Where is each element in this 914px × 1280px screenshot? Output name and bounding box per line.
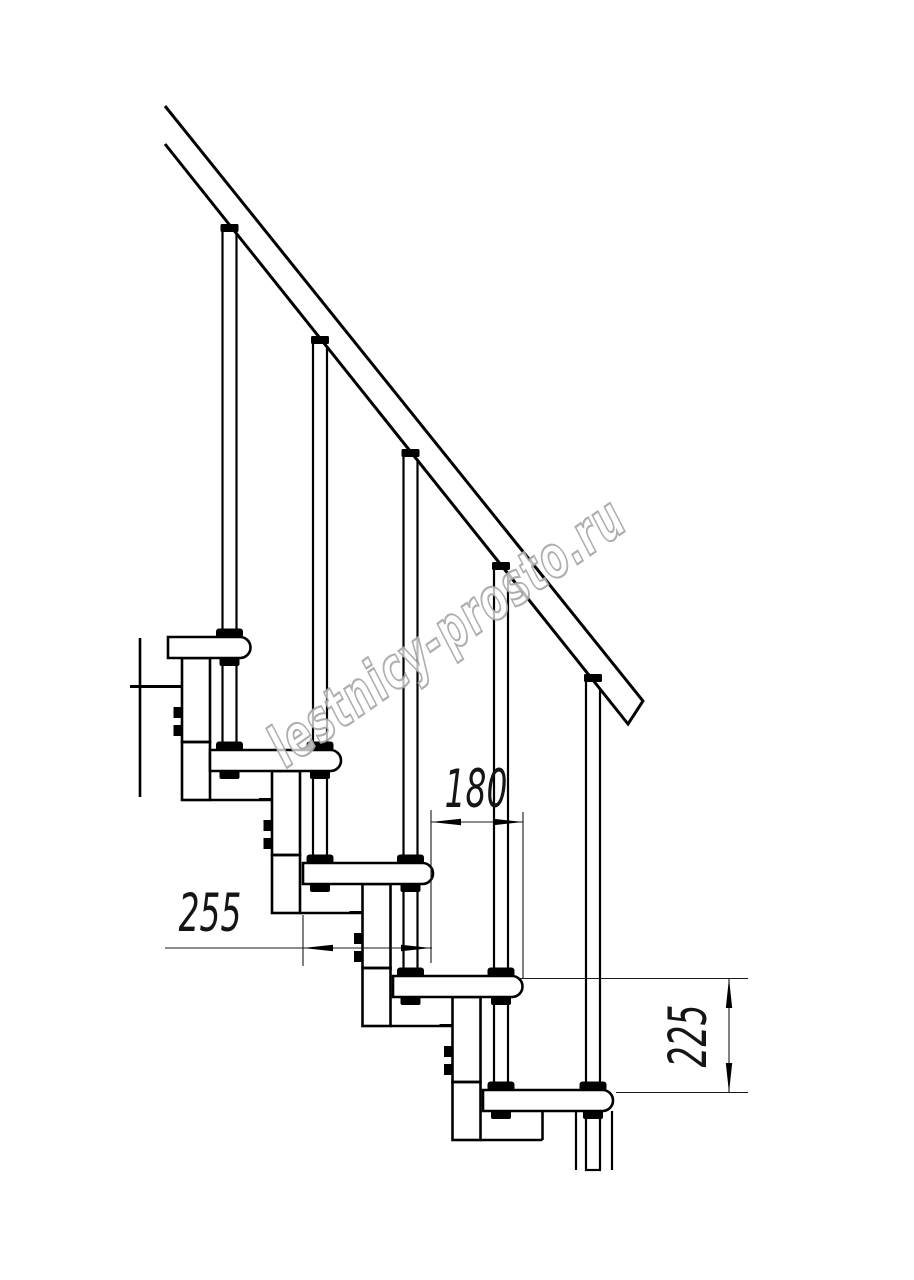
balusters bbox=[223, 230, 601, 1170]
collar-icon bbox=[397, 968, 424, 978]
tread bbox=[168, 637, 251, 658]
bolt-icon bbox=[264, 838, 273, 849]
dimension-label-255: 255 bbox=[179, 883, 242, 944]
bolt-icon bbox=[354, 951, 363, 962]
bolt-icon bbox=[444, 1046, 453, 1057]
dimension-label-180: 180 bbox=[445, 759, 508, 820]
arrow-up-icon bbox=[726, 979, 732, 1009]
nut-icon bbox=[310, 770, 330, 779]
nut-icon bbox=[491, 996, 511, 1005]
baluster bbox=[223, 230, 237, 750]
support-module bbox=[259, 771, 363, 913]
nut-icon bbox=[583, 1110, 603, 1119]
staircase-drawing-page: 180 255 225 lestnicy-prosto.ru bbox=[0, 0, 914, 1280]
collar-icon bbox=[488, 1082, 515, 1092]
baluster bbox=[404, 455, 418, 976]
collar-icon bbox=[397, 855, 424, 865]
collar-icon bbox=[307, 855, 334, 865]
dimension-label-225: 225 bbox=[658, 1005, 719, 1068]
bolt-icon bbox=[174, 725, 183, 736]
bolt-icon bbox=[444, 1064, 453, 1075]
support-module bbox=[350, 884, 453, 1026]
nut-icon bbox=[491, 1110, 511, 1119]
nut-icon bbox=[401, 996, 421, 1005]
rail-cap-icon bbox=[402, 449, 420, 457]
baluster bbox=[494, 568, 508, 1090]
collar-icon bbox=[488, 968, 515, 978]
tread bbox=[393, 976, 523, 997]
arrow-down-icon bbox=[726, 1063, 732, 1093]
collar-icon bbox=[216, 742, 243, 752]
tread bbox=[303, 863, 433, 884]
nut-icon bbox=[220, 770, 240, 779]
bolt-icon bbox=[354, 933, 363, 944]
rail-cap-icon bbox=[584, 674, 602, 682]
collar-icon bbox=[216, 629, 243, 639]
support-module bbox=[440, 997, 543, 1140]
collar-icon bbox=[580, 1082, 607, 1092]
nut-icon bbox=[220, 657, 240, 666]
staircase-technical-drawing: 180 255 225 lestnicy-prosto.ru bbox=[0, 0, 914, 1280]
nut-icon bbox=[310, 883, 330, 892]
nut-icon bbox=[401, 883, 421, 892]
dimension-labels: 180 255 225 bbox=[179, 759, 720, 1067]
rail-cap-icon bbox=[311, 336, 329, 344]
baluster bbox=[313, 342, 327, 863]
bolt-icon bbox=[174, 707, 183, 718]
rail-cap-icon bbox=[221, 224, 239, 232]
tread bbox=[483, 1090, 613, 1111]
arrow-left-icon bbox=[303, 945, 333, 951]
bolt-icon bbox=[264, 820, 273, 831]
